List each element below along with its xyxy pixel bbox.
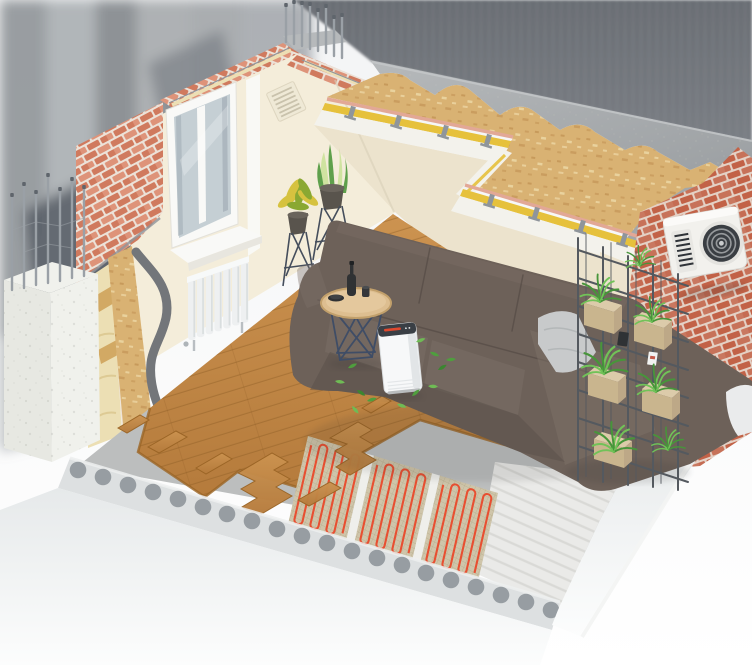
- radiator-valve: [183, 341, 188, 346]
- window-handle: [199, 164, 203, 172]
- wall-cut-edge: [246, 74, 260, 256]
- room-cutaway-illustration: [0, 0, 752, 665]
- speaker: [617, 331, 629, 346]
- bottle: [347, 274, 356, 296]
- photo-card: [647, 352, 658, 366]
- cutaway-scene: [0, 0, 752, 665]
